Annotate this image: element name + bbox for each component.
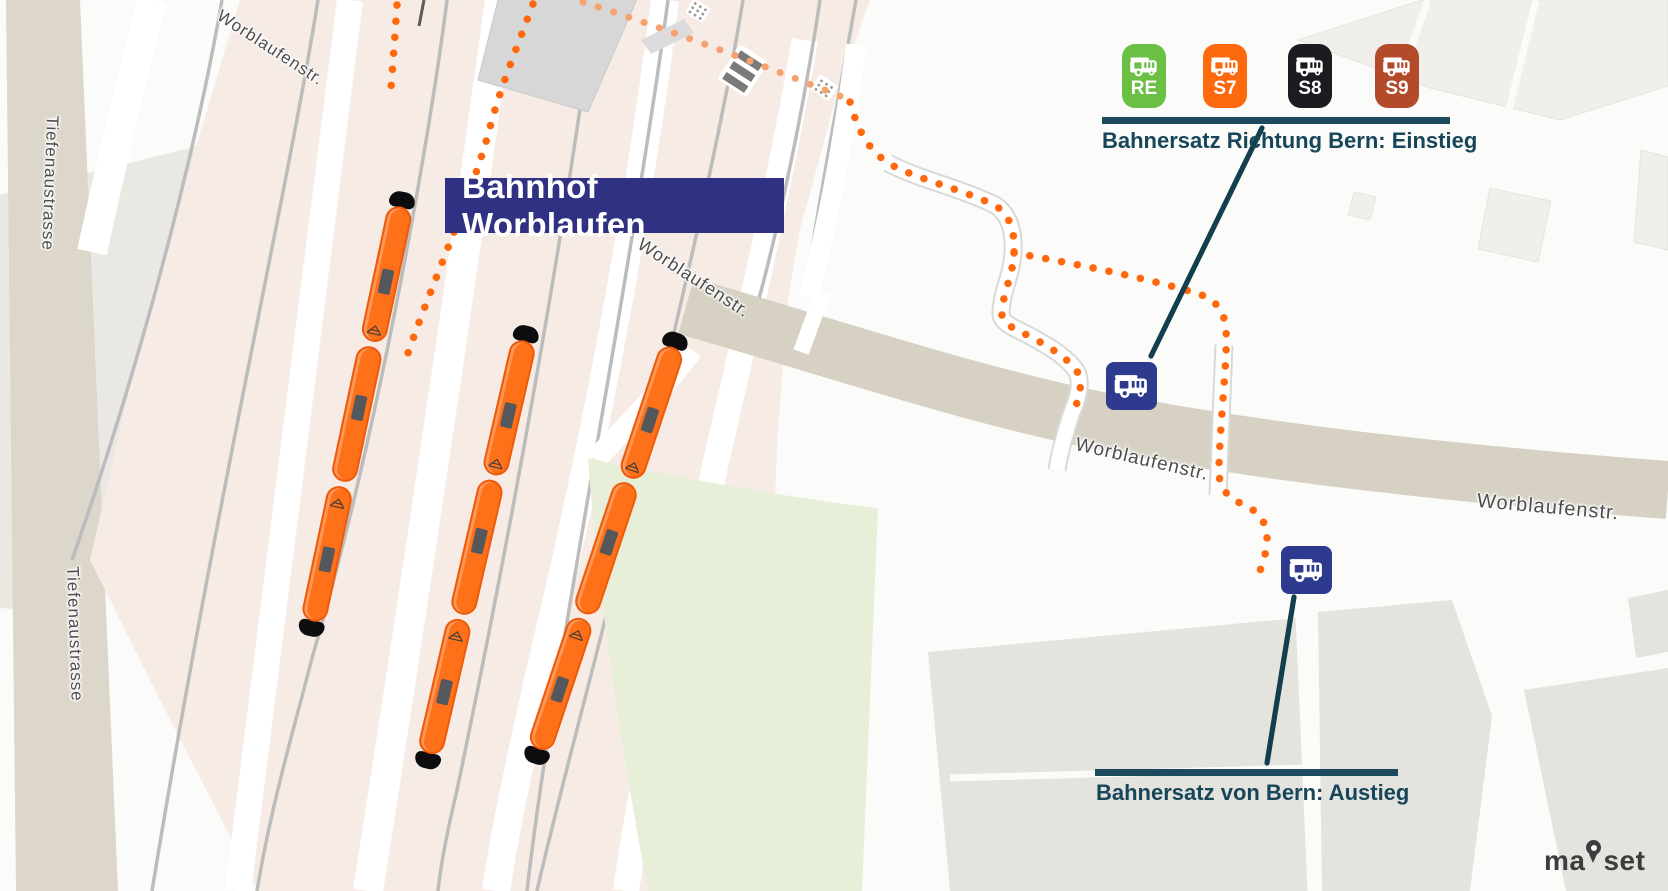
bus-stop-alighting[interactable] [1281, 546, 1332, 594]
line-badge-label: S9 [1385, 79, 1408, 98]
station-label[interactable]: Bahnhof Worblaufen [445, 178, 784, 233]
pantograph-icon [486, 455, 506, 471]
line-badge-re[interactable]: RE [1122, 44, 1166, 108]
line-badge-label: S8 [1298, 79, 1321, 98]
train-door [500, 402, 517, 429]
map-canvas[interactable]: Worblaufenstr. Tiefenaustrasse Tiefenaus… [0, 0, 1668, 891]
train-door [471, 528, 488, 555]
train-door [318, 546, 335, 573]
pantograph-icon [328, 494, 348, 509]
logo-prefix: ma [1544, 845, 1585, 877]
bus-icon [1113, 372, 1150, 400]
caption-alighting[interactable]: Bahnersatz von Bern: Austieg [1096, 780, 1409, 806]
pantograph-icon [365, 321, 385, 336]
bus-icon [1382, 55, 1412, 78]
line-badge-s9[interactable]: S9 [1375, 44, 1419, 108]
bus-icon [1288, 556, 1325, 584]
pantograph-icon [447, 627, 467, 643]
mapset-logo[interactable]: ma set [1544, 845, 1645, 877]
caption-underline-alighting [1095, 769, 1398, 776]
bus-icon [1295, 55, 1325, 78]
train-door [599, 529, 618, 557]
bus-icon [1129, 55, 1159, 78]
train-door [436, 679, 453, 706]
bus-icon [1210, 55, 1240, 78]
line-badge-label: S7 [1213, 79, 1236, 98]
logo-suffix: set [1603, 845, 1645, 877]
line-badge-s8[interactable]: S8 [1288, 44, 1332, 108]
train-door [550, 676, 569, 704]
train-door [640, 406, 659, 434]
train-door [377, 268, 394, 295]
train-door [351, 394, 368, 421]
line-badge-label: RE [1131, 79, 1157, 98]
caption-underline-boarding [1102, 117, 1450, 124]
caption-boarding[interactable]: Bahnersatz Richtung Bern: Einstieg [1102, 128, 1477, 154]
bus-stop-boarding[interactable] [1106, 362, 1157, 410]
logo-pin-icon [1586, 854, 1602, 870]
pantograph-icon [623, 457, 644, 474]
pantograph-icon [567, 625, 588, 642]
line-badge-s7[interactable]: S7 [1203, 44, 1247, 108]
